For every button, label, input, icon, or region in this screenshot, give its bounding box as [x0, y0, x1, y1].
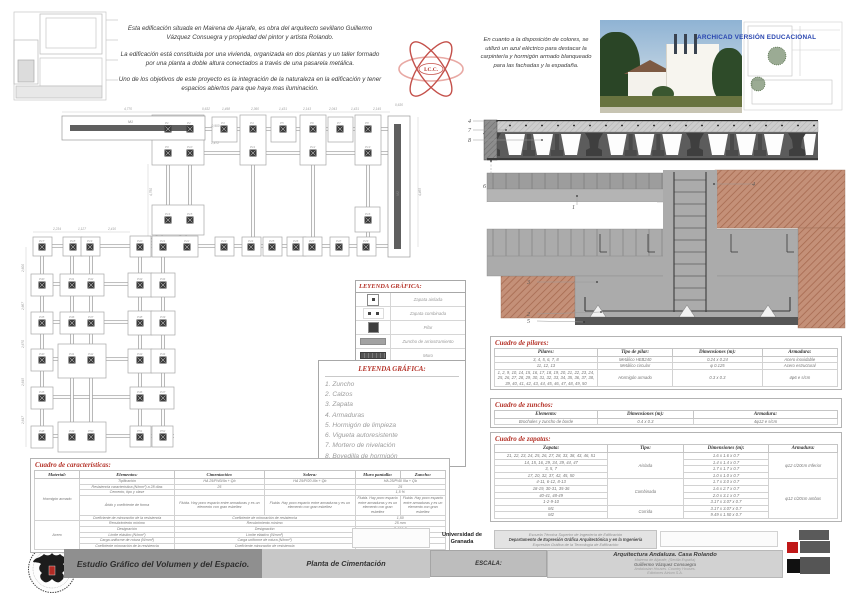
dimension-label: 2,410: [107, 227, 116, 231]
dimension-label: 2,600: [21, 264, 25, 273]
table-cell: Fluida. Hay poco espacio entre armaduras…: [355, 496, 400, 516]
svg-text:M1: M1: [128, 120, 133, 124]
pilar-label: P9: [165, 145, 169, 149]
dimension-label: -0,900: [210, 124, 219, 128]
table-cell: Combinada: [608, 479, 683, 505]
legend-row: Zapata combinada: [356, 307, 465, 321]
legend-number-item: 7. Mortero de nivelación: [325, 441, 459, 451]
pilar-label: P8: [365, 121, 369, 125]
pilar-label: P36: [69, 315, 75, 319]
pilar-label: P32: [88, 277, 94, 281]
dimension-label: 4,770: [124, 107, 132, 111]
window: [684, 34, 687, 54]
pilar-label: P18: [70, 239, 76, 243]
table-cell: 4φ12 e s/cm: [693, 419, 837, 425]
aislada-symbol: [367, 294, 379, 306]
description-paragraph: Uno de los objetivos de este proyecto es…: [118, 75, 382, 94]
column-header: Tipo:: [608, 445, 683, 453]
drawing-sheet: I.C.C. M1M2P1P2P3P4P5P6P7P8P9P10P11P12P1…: [0, 0, 848, 600]
column-header: Dimensiones (m):: [597, 411, 693, 419]
pilar-label: P51: [137, 429, 143, 433]
table-cell: Fluida. Hay poco espacio entre armaduras…: [174, 496, 264, 516]
pilar-label: P46: [137, 390, 143, 394]
pilar-label: P45: [39, 390, 45, 394]
empty-titleblock-cell: [660, 531, 778, 547]
table-cell: 1.7 x 3.0 x 0.7: [683, 479, 769, 486]
table-row: 4-11, 6-12, 8-13Combinada1.7 x 3.0 x 0.7…: [495, 479, 838, 486]
pilar-label: P52: [160, 429, 166, 433]
legend-label: Zuncho de arriostramiento: [391, 339, 465, 344]
pilar-label: P38: [137, 315, 143, 319]
table-cell: Fluida. Hay poco espacio entre armaduras…: [265, 496, 355, 516]
pilar-label: P25: [269, 239, 275, 243]
archicad-watermark: ARCHICAD VERSIÓN EDUCACIONAL: [697, 34, 833, 41]
logo-block: [800, 541, 830, 553]
pilar-label: P15: [187, 212, 193, 216]
legend-row: Pilar: [356, 321, 465, 335]
table-cell: Coeficiente de minoración de la resisten…: [80, 515, 175, 521]
description-paragraph: Esta edificación situada en Mairena de A…: [118, 24, 382, 43]
callout-number: 2: [527, 312, 530, 318]
pilar-label: P40: [39, 352, 45, 356]
column-header: Tipo de pilar:: [597, 349, 672, 357]
table-cell: 1.4 x 1.4 x 0.7: [683, 459, 769, 466]
pilar-label: P42: [88, 352, 94, 356]
dimension-label: 1,498: [222, 107, 230, 111]
pilar-label: P10: [187, 145, 193, 149]
table-cell: Hormigón armado: [35, 479, 80, 521]
svg-text:M2: M2: [396, 191, 400, 196]
legend-number-item: 5. Hormigón de limpieza: [325, 421, 459, 431]
pilar-label: P30: [39, 277, 45, 281]
table-cell: 17, 20, 32, 37, 42, 45, 50: [495, 472, 608, 479]
table-cell: 1.6 x 2.7 x 0.7: [683, 485, 769, 492]
table-cell: φ12 c/20cm ambas: [769, 479, 838, 519]
table-cell: Corrida: [608, 505, 683, 518]
callout-number: 4: [752, 181, 755, 188]
callout-number: 3: [526, 280, 530, 286]
dimension-label: 2,645: [21, 378, 25, 387]
legend-label: Pilar: [391, 325, 465, 330]
pilar-label: P11: [250, 145, 255, 149]
pilar-label: P41: [69, 352, 75, 356]
pilar-label: P2: [187, 121, 191, 125]
table-cell: φ12 c/20cm Inferior: [769, 453, 838, 479]
column-header: Solera:: [265, 471, 355, 479]
column-header: Cimentación:: [174, 471, 264, 479]
table-cell: 4φ6 e s/cm: [762, 369, 837, 386]
path: [600, 107, 742, 113]
table-cell: 40-41, 48-49: [495, 492, 608, 499]
legend-number-item: 3. Zapata: [325, 400, 459, 410]
legend-graphic-numbers: LEYENDA GRÁFICA: 1. Zuncho2. Calzos3. Za…: [318, 360, 466, 467]
dimension-label: 2,360: [250, 107, 259, 111]
dimension-label: 0,630: [395, 103, 403, 107]
subject-line: Expresión Gráfica de la Tecnología de Ed…: [495, 542, 656, 547]
pilar-label: P12: [310, 145, 316, 149]
dimension-label: 2,143: [302, 107, 311, 111]
pilar-label: P22: [184, 239, 190, 243]
callout-number: 7: [468, 128, 472, 134]
logo-block-red: [787, 542, 798, 553]
pilar-label: P17: [39, 239, 45, 243]
legend-symbol-cell: [356, 293, 391, 306]
table-cell: 1.7 x 1.7 x 0.7: [683, 466, 769, 473]
table-cell: 3, 5, 7: [495, 466, 608, 473]
column-header: Elemento:: [495, 411, 598, 419]
legend-symbol-cell: [356, 321, 391, 334]
table-cell: M2: [495, 512, 608, 519]
legend-label: Zapata aislada: [391, 297, 465, 302]
project-description: Esta edificación situada en Mairena de A…: [118, 24, 382, 101]
callout-number: 8: [468, 138, 471, 144]
scale-label: ESCALA:: [430, 550, 547, 577]
department-box: Escuela Técnica Superior de Ingeniería d…: [494, 530, 657, 549]
description-paragraph: La edificación está constituida por una …: [118, 50, 382, 69]
column-header: Pilares:: [495, 349, 598, 357]
sheet-title: Estudio Gráfico del Volumen y del Espaci…: [64, 549, 262, 578]
table-pilares: Cuadro de pilares:Pilares:Tipo de pilar:…: [490, 336, 842, 390]
table-cell: Aislada: [608, 453, 683, 479]
dimension-label: 2,667: [21, 302, 25, 311]
dimension-label: 4,465: [418, 188, 422, 196]
pilar-label: P28: [336, 239, 342, 243]
table-cell: 2.0 x 3.1 x 0.7: [683, 492, 769, 499]
table-zunchos: Cuadro de zunchos:Elemento:Dimensiones (…: [490, 398, 842, 428]
legend-number-item: 2. Calzos: [325, 390, 459, 400]
window: [674, 34, 677, 54]
table-cell: Hormigón armado: [597, 369, 672, 386]
dimension-label: 2,647: [21, 416, 25, 425]
table-cell: 9.49 x 1.50 x 0.7: [683, 512, 769, 519]
legend-row: Zapata aislada: [356, 293, 465, 307]
pilar-label: P5: [280, 121, 284, 125]
legend-graphic-symbols: LEYENDA GRÁFICA: Zapata aisladaZapata co…: [355, 280, 466, 363]
dimension-label: 2,145: [372, 107, 381, 111]
cuadro-title: Cuadro de zunchos:: [495, 401, 838, 409]
pilar-label: P33: [137, 277, 143, 281]
logo-monogram: I.C.C.: [424, 67, 439, 73]
pilar-label: P29: [363, 239, 369, 243]
atom-logo: I.C.C.: [399, 36, 463, 102]
column-header: Armadura:: [769, 445, 838, 453]
pilar-label: P7: [337, 121, 341, 125]
combinada-symbol: [363, 308, 384, 319]
table-cell: 18-19, 30-31, 35-36: [495, 485, 608, 492]
cuadro-title: Cuadro de zapatas:: [495, 435, 838, 443]
pilar-label: P14: [165, 212, 171, 216]
legend-title: LEYENDA GRÁFICA:: [325, 364, 459, 377]
muro-symbol: [360, 352, 386, 359]
table-cell: M1: [495, 505, 608, 512]
pilar-label: P35: [39, 315, 45, 319]
table-cell: Fluida. Hay poco espacio entre armaduras…: [400, 496, 445, 516]
column-header: Material:: [35, 471, 80, 479]
legend-row: Zuncho de arriostramiento: [356, 335, 465, 349]
legend-symbol-cell: [356, 307, 391, 320]
column-header: Zuncho:: [400, 471, 445, 479]
pilar-label: P43: [137, 352, 143, 356]
pilar-label: P47: [160, 390, 166, 394]
table-cell: 1.6 x 1.6 x 0.7: [683, 453, 769, 460]
pilar-label: P23: [221, 239, 227, 243]
pilar-label: P44: [160, 352, 166, 356]
table-cell: 0.3 x 0.3: [673, 369, 762, 386]
site-sketch: [14, 12, 118, 100]
column-header: Zapata:: [495, 445, 608, 453]
legend-number-item: 1. Zuncho: [325, 380, 459, 390]
pilar-label: P6: [310, 121, 314, 125]
table-row: 1, 2, 9, 10, 14, 15, 16, 17, 18, 19, 20,…: [495, 369, 838, 386]
dimension-label: 1,431: [279, 107, 287, 111]
dimension-label: 1,127: [78, 227, 86, 231]
dimension-label: 1,472: [211, 141, 219, 145]
pilar-label: P16: [365, 212, 371, 216]
table-cell: 1, 2, 9, 10, 14, 15, 16, 17, 18, 19, 20,…: [495, 369, 598, 386]
column-header: Dimensiones (m):: [683, 445, 769, 453]
cuadro-title: Cuadro de pilares:: [495, 339, 838, 347]
pilar-label: P4: [250, 121, 254, 125]
pilar-label: P31: [69, 277, 75, 281]
pilar-label: P19: [87, 239, 93, 243]
pilar-label: P34: [160, 277, 166, 281]
pilar-label: P39: [160, 315, 166, 319]
table-row: Brochales y zuncho de borde0.4 x 0.34φ12…: [495, 419, 838, 425]
pilar-label: P48: [39, 429, 45, 433]
pilar-label: P3: [221, 121, 225, 125]
table-cell: Resistencia característica (N/mm²) a 28 …: [80, 484, 175, 490]
dimension-label: 2,670: [21, 340, 25, 349]
table-cell: 4-11, 6-12, 8-13: [495, 479, 608, 486]
pilar-label: P50: [88, 429, 94, 433]
column-header: Armadura:: [693, 411, 837, 419]
callout-number: 1: [572, 205, 575, 211]
zuncho-symbol: [360, 338, 386, 345]
color-note: En cuanto a la disposición de colores, s…: [479, 36, 593, 71]
dimension-label: 2,043: [328, 107, 337, 111]
legend-label: Zapata combinada: [391, 311, 465, 316]
legend-title: LEYENDA GRÁFICA:: [356, 281, 465, 293]
location-sketch-box: [352, 528, 430, 548]
university-name: Universidad de Granada: [433, 532, 491, 545]
table-row: Árido y coeficiente de formaFluida. Hay …: [35, 496, 446, 516]
callout-number: 4: [468, 118, 471, 125]
table-zapatas: Cuadro de zapatas:Zapata:Tipo:Dimensione…: [490, 432, 842, 522]
data-table: Zapata:Tipo:Dimensiones (m):Armadura:21,…: [494, 444, 838, 519]
foundation-section-detail: 614325: [483, 160, 845, 328]
cuadro-title: Cuadro de características:: [35, 461, 446, 469]
pilar-label: P37: [88, 315, 94, 319]
project-info-box: Arquitectura Andaluza. Casa Rolando Mair…: [547, 550, 783, 578]
column-header: Elementos:: [80, 471, 175, 479]
table-cell: Árido y coeficiente de forma: [80, 496, 175, 516]
pilar-label: P13: [365, 145, 371, 149]
pilar-label: P49: [69, 429, 75, 433]
table-cell: Brochales y zuncho de borde: [495, 419, 598, 425]
table-cell: 3.17 x 3.07 x 0.7: [683, 505, 769, 512]
table-cell: 0.4 x 0.3: [597, 419, 693, 425]
logo-block-black: [787, 559, 800, 573]
dimension-label: 1,431: [351, 107, 359, 111]
callout-number: 6: [483, 184, 486, 190]
table-cell: 14, 15, 16, 29, 34, 39, 44, 47: [495, 459, 608, 466]
logo-block: [800, 557, 830, 574]
column-header: Armadura:: [762, 349, 837, 357]
logo-block: [799, 530, 829, 540]
grass: [600, 96, 742, 107]
dimension-label: 4,750: [149, 188, 153, 196]
drawing-title: Planta de Cimentación: [262, 549, 430, 578]
table-cell: 1.0 x 1.0 x 0.7: [683, 472, 769, 479]
dimension-label: 2,234: [52, 227, 61, 231]
legend-symbol-cell: [356, 335, 391, 348]
slab-section-detail: 478: [468, 118, 818, 160]
legend-number-item: 6. Vigueta autoresistente: [325, 431, 459, 441]
column-header: Muro pantalla:: [355, 471, 400, 479]
callout-number: 5: [527, 319, 530, 325]
legend-number-item: 4. Armaduras: [325, 411, 459, 421]
dimension-label: 0,632: [202, 107, 210, 111]
pilar-label: P26: [293, 239, 299, 243]
pilar-label: P1: [165, 121, 169, 125]
pilar-label: P27: [309, 239, 315, 243]
pilar-symbol: [368, 322, 379, 333]
table-row: 21, 22, 23, 24, 25, 26, 27, 28, 33, 38, …: [495, 453, 838, 460]
etsie-pixel-logo: [787, 529, 844, 577]
legend-label: Muro: [391, 353, 465, 358]
pilar-label: P20: [137, 239, 143, 243]
table-cell: 3.17 x 3.07 x 0.7: [683, 499, 769, 506]
column-header: Dimensiones (m):: [673, 349, 762, 357]
table-cell: 1-2-9-10: [495, 499, 608, 506]
data-table: Pilares:Tipo de pilar:Dimensiones (m):Ar…: [494, 348, 838, 387]
table-cell: Acero: [35, 521, 80, 549]
pilar-label: P21: [160, 239, 166, 243]
project-publisher: Ediciones Atrium S.A.: [548, 571, 782, 575]
table-cell: 21, 22, 23, 24, 25, 26, 27, 28, 33, 38, …: [495, 453, 608, 460]
pilar-label: P24: [248, 239, 254, 243]
data-table: Elemento:Dimensiones (m):Armadura:Brocha…: [494, 410, 838, 425]
